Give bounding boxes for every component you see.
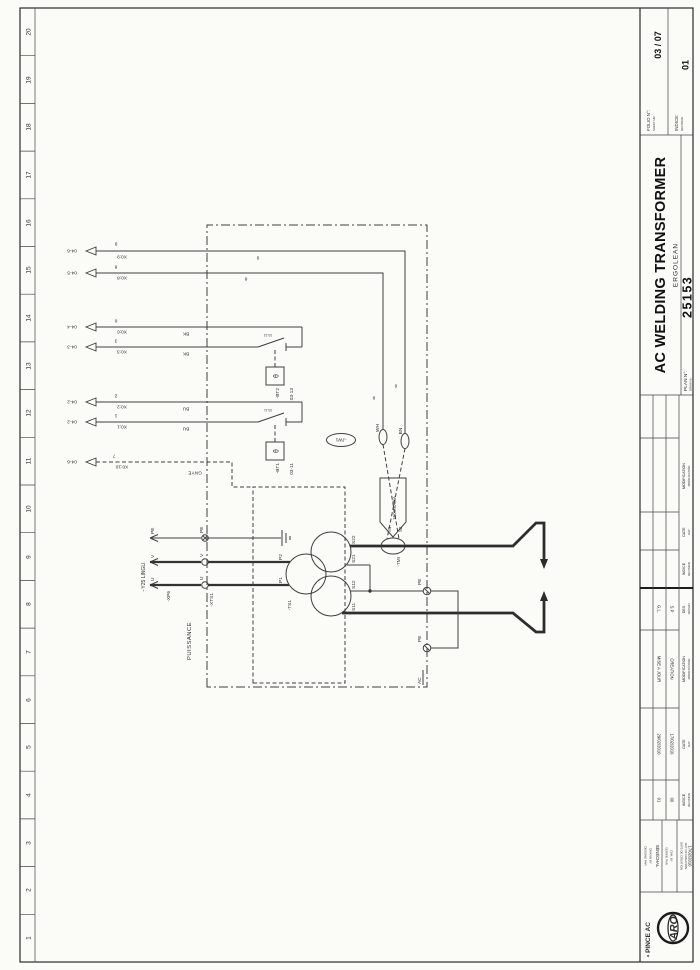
ruler-number: 6 [26, 698, 33, 702]
electrode-arrow-icon [540, 559, 548, 569]
svg-text:MODIFICATION: MODIFICATION [687, 659, 691, 680]
wire-color-gnye: GNYE [188, 470, 202, 476]
scanned-schematic-sheet: 1 2 3 4 5 6 7 8 9 10 11 12 13 14 15 16 1… [0, 0, 700, 970]
svg-text:9: 9 [256, 255, 259, 261]
svg-text:9: 9 [114, 241, 117, 247]
svg-text:INDICE:: INDICE: [674, 114, 679, 131]
svg-text:V: V [150, 554, 156, 558]
svg-text:29/02/2010: 29/02/2010 [657, 734, 662, 756]
svg-text:DRAW Nr:: DRAW Nr: [689, 377, 693, 391]
connector-xts1: U V PE -XTS1 PUISSANCE [187, 527, 215, 660]
creation-date-value: 17/02/2010 [688, 846, 693, 868]
svg-text:04-6: 04-6 [67, 248, 77, 254]
svg-text:PE: PE [417, 579, 423, 585]
wire-color-bn: BN [398, 427, 404, 434]
terminal-x0-10: 04-6 X0:10 7 GNYE [67, 453, 252, 488]
svg-text:CHK. BY: CHK. BY [670, 850, 674, 862]
schematic-area: AC 04-6 X0:10 7 GNYE 04-2 X0:1 1 BU [67, 225, 548, 687]
svg-text:S.P: S.P [670, 606, 675, 613]
enclosure-boundary [207, 225, 427, 687]
drawn-by-value: SÉNÉCHAL [655, 845, 660, 868]
svg-text:SHEET NR:: SHEET NR: [652, 115, 656, 131]
svg-text:DESSINE PAR: DESSINE PAR [644, 846, 648, 865]
svg-text:MISE A JOUR: MISE A JOUR [657, 656, 662, 682]
ruler-number: 17 [26, 171, 33, 179]
ruler: 1 2 3 4 5 6 7 8 9 10 11 12 13 14 15 16 1… [26, 28, 33, 940]
ruler-number: 1 [26, 936, 33, 940]
svg-text:PE: PE [417, 636, 423, 642]
svg-text:X0:9: X0:9 [117, 254, 127, 260]
svg-text:2: 2 [114, 393, 117, 399]
svg-text:-BT1: -BT1 [275, 463, 281, 474]
folio-cell: FOLIO N°: SHEET NR: 03 / 07 [646, 31, 663, 131]
svg-text:X0:8: X0:8 [117, 275, 127, 281]
svg-text:ARO: ARO [668, 916, 680, 940]
ruler-number: 11 [26, 457, 33, 464]
svg-text:DRAWN BY: DRAWN BY [649, 848, 653, 864]
svg-text:17/02/2010: 17/02/2010 [670, 734, 675, 756]
svg-text:MODIFICATION: MODIFICATION [682, 656, 686, 682]
schematic-sheet-svg: 1 2 3 4 5 6 7 8 9 10 11 12 13 14 15 16 1… [0, 0, 700, 970]
doc-title: • PINCE AC [645, 922, 652, 957]
plan-number: 25153 [681, 276, 695, 318]
svg-text:X0:3: X0:3 [117, 349, 127, 355]
ruler-number: 16 [26, 219, 33, 227]
svg-text:VERIFIE PAR: VERIFIE PAR [665, 847, 669, 865]
main-title-cell: AC WELDING TRANSFORMER ERGOLEAN PLAN N°:… [653, 156, 695, 391]
drawing-frame [20, 8, 693, 962]
svg-text:9: 9 [395, 384, 398, 390]
svg-text:S21: S21 [351, 554, 357, 563]
svg-text:INDICE: INDICE [682, 562, 686, 575]
drawing-title: AC WELDING TRANSFORMER [653, 156, 669, 373]
ruler-number: 15 [26, 266, 33, 274]
aro-logo: ARO [658, 913, 688, 943]
svg-text:04-2: 04-2 [67, 419, 77, 425]
wire-color-wh: WH [375, 423, 381, 432]
svg-text:1: 1 [114, 413, 117, 419]
svg-text:S22: S22 [351, 535, 357, 544]
svg-text:DATE: DATE [682, 739, 686, 749]
svg-text:01: 01 [657, 798, 662, 803]
svg-text:X0:1: X0:1 [117, 424, 127, 430]
ruler-number: 14 [26, 314, 33, 322]
wire-color-bk: BK [182, 351, 189, 357]
svg-text:DAY: DAY [687, 741, 691, 747]
svg-text:S11: S11 [351, 602, 357, 611]
wire-color-bu: BU [182, 406, 189, 412]
welding-circuit [342, 523, 548, 632]
svg-text:V: V [199, 553, 205, 557]
electrode-arrow-icon [540, 591, 548, 601]
svg-text:3: 3 [114, 338, 117, 344]
svg-text:INDICE: INDICE [682, 793, 686, 806]
current-sensor-tmi: S1 S2 150mVA/kA -TMI [380, 478, 406, 567]
thermal-switch-bt2: θ -BT2 03-13 03-13 [258, 327, 302, 400]
svg-text:8: 8 [373, 396, 376, 402]
svg-text:7: 7 [112, 453, 115, 459]
pe-bonding: PE PE [417, 579, 458, 652]
indice-value: 01 [681, 60, 691, 70]
svg-text:-JW1: -JW1 [335, 438, 346, 443]
revision-row: 01 29/02/2010 MISE A JOUR G.L. [657, 605, 662, 803]
svg-text:8: 8 [244, 276, 247, 282]
svg-text:DATE: DATE [682, 527, 686, 537]
svg-text:6: 6 [114, 318, 117, 324]
svg-text:00: 00 [670, 798, 675, 803]
ruler-number: 4 [26, 793, 33, 797]
terminal-x0-1: 04-2 X0:1 1 BU [67, 413, 258, 432]
revision-row: 00 17/02/2010 CREATION S.P [670, 606, 675, 803]
ruler-number: 3 [26, 841, 33, 845]
svg-text:04-2: 04-2 [67, 399, 77, 405]
svg-text:X0:10: X0:10 [115, 464, 128, 470]
svg-text:04-6: 04-6 [67, 459, 77, 465]
title-block: • PINCE AC ARO DESSINE PAR DRAWN BY SÉNÉ… [640, 8, 695, 962]
svg-text:DRAWN: DRAWN [687, 604, 691, 615]
theta-icon: θ [274, 374, 281, 378]
drawing-subtitle: ERGOLEAN [673, 243, 680, 287]
svg-text:PE: PE [150, 528, 156, 534]
wire-color-bu: BU [182, 426, 189, 432]
svg-text:04-3: 04-3 [67, 344, 77, 350]
ruler-number: 20 [26, 28, 33, 36]
svg-text:DAY OF CREATION: DAY OF CREATION [684, 843, 688, 869]
svg-text:-TS1: -TS1 [287, 600, 293, 611]
svg-text:04-4: 04-4 [67, 324, 77, 330]
svg-text:DAY: DAY [687, 529, 691, 535]
svg-text:S2: S2 [398, 526, 403, 532]
svg-text:PE: PE [199, 527, 205, 533]
ruler-number: 12 [26, 409, 33, 417]
ruler-number: 8 [26, 602, 33, 606]
power-label: PUISSANCE [187, 622, 193, 660]
indice-cell: INDICE: REVISION 01 [674, 60, 691, 131]
ruler-number: 18 [26, 123, 33, 131]
svg-text:AC: AC [417, 677, 423, 684]
svg-text:150mVA/kA: 150mVA/kA [392, 495, 397, 520]
svg-text:03-11: 03-11 [289, 463, 295, 475]
ruler-number: 9 [26, 555, 33, 559]
svg-text:-XP6: -XP6 [166, 591, 172, 602]
ruler-number: 10 [26, 505, 33, 513]
svg-text:03-13: 03-13 [264, 333, 272, 337]
revision-headers: INDICE REVISION DATE DAY MODIFICATION MO… [682, 463, 691, 807]
svg-text:DATE DE CREATION: DATE DE CREATION [680, 842, 684, 870]
svg-text:03-11: 03-11 [264, 408, 272, 412]
svg-text:P2: P2 [278, 554, 284, 560]
svg-text:MODIFICATION: MODIFICATION [682, 463, 686, 489]
svg-text:8: 8 [114, 264, 117, 270]
wire-color-bk: BK [182, 331, 189, 337]
thermal-switch-bt1: θ -BT1 03-11 03-11 [258, 402, 302, 475]
author-cell: • PINCE AC ARO DESSINE PAR DRAWN BY SÉNÉ… [644, 842, 693, 957]
revision-table: 01 29/02/2010 MISE A JOUR G.L. 00 17/02/… [657, 463, 691, 807]
terminal-x0-3: 04-3 X0:3 3 BK [67, 338, 258, 357]
ruler-number: 2 [26, 888, 33, 892]
folio-value: 03 / 07 [653, 31, 663, 59]
ground-icon [282, 530, 290, 546]
svg-text:U: U [150, 577, 156, 581]
svg-text:DES.: DES. [682, 605, 686, 613]
jumper-jw1: -JW1 WH BN [327, 423, 406, 539]
svg-text:G.L.: G.L. [657, 605, 662, 613]
svg-text:U: U [199, 576, 205, 580]
svg-text:04-5: 04-5 [67, 270, 77, 276]
ruler-number: 19 [26, 76, 33, 84]
ruler-number: 13 [26, 362, 33, 370]
svg-text:MODIFICATION: MODIFICATION [687, 466, 691, 487]
svg-text:-BT2: -BT2 [275, 388, 281, 399]
svg-text:03-13: 03-13 [289, 388, 295, 401]
svg-text:CREATION: CREATION [670, 658, 675, 679]
ac-label: AC [417, 670, 423, 685]
svg-text:X0:2: X0:2 [117, 404, 127, 410]
svg-text:P1: P1 [278, 577, 284, 583]
svg-text:S12: S12 [351, 580, 357, 589]
landscape-drawing: 1 2 3 4 5 6 7 8 9 10 11 12 13 14 15 16 1… [0, 0, 700, 970]
theta-icon: θ [274, 449, 281, 453]
connector-xp6: U V PE -XP6 - Y25 LINGLI [141, 528, 201, 602]
svg-text:REVISION: REVISION [680, 117, 684, 131]
svg-text:S1: S1 [387, 526, 392, 532]
primary-wiring: P1 P2 [208, 530, 290, 585]
svg-text:X0:6: X0:6 [117, 329, 127, 335]
svg-text:-XTS1: -XTS1 [209, 593, 215, 607]
ruler-number: 5 [26, 745, 33, 749]
svg-text:REVISION: REVISION [687, 562, 691, 576]
ruler-number: 7 [26, 650, 33, 654]
svg-text:FOLIO N°:: FOLIO N°: [646, 110, 651, 131]
svg-text:REVISION: REVISION [687, 793, 691, 807]
cable-designation: - Y25 LINGLI [141, 562, 147, 591]
svg-text:-TMI: -TMI [396, 557, 402, 567]
